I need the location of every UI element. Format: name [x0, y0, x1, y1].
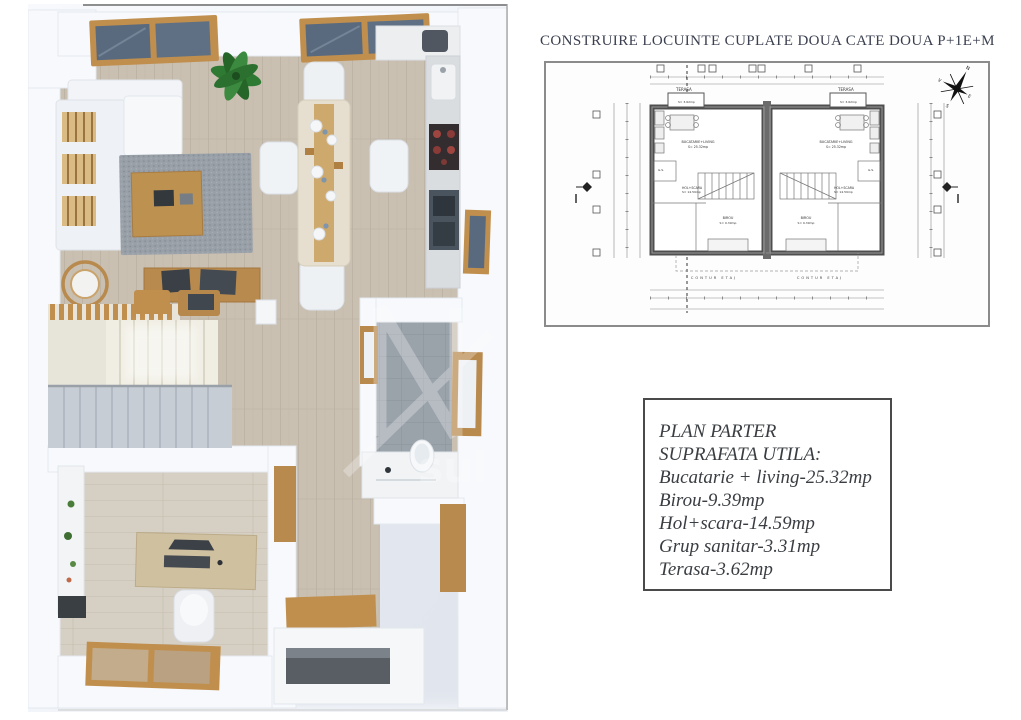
svg-text:BIROU: BIROU: [801, 216, 812, 220]
svg-text:G.S.: G.S.: [658, 168, 664, 172]
desk-chair-1: [134, 290, 170, 314]
window-top-left: [89, 15, 219, 67]
svg-text:S= 9.39mp: S= 9.39mp: [720, 221, 737, 225]
svg-text:S= 9.39mp: S= 9.39mp: [798, 221, 815, 225]
office-tv: [58, 596, 86, 618]
svg-text:BUCATARIE+LIVING: BUCATARIE+LIVING: [819, 140, 852, 144]
blueprint-svg: TERASA TERASA: [546, 63, 988, 325]
stair-lower-flight: [48, 386, 232, 448]
listing-image: sul CONSTRUIRE LOCUINTE CUPLATE DOUA CAT…: [0, 0, 1021, 720]
office-shelf: [58, 466, 84, 614]
sofa-cushions: [62, 112, 96, 226]
staircase: [48, 320, 232, 448]
area-item: Hol+scara-14.59mp: [659, 512, 890, 535]
floor-plan-3d-render: sul: [28, 4, 508, 712]
entrance-mat: [285, 594, 376, 629]
stair-landing: [48, 320, 106, 386]
page-title: CONSTRUIRE LOCUINTE CUPLATE DOUA CATE DO…: [540, 33, 1000, 50]
dining-chair-right: [370, 140, 408, 192]
area-box-heading-2: SUPRAFATA UTILA:: [659, 443, 890, 466]
svg-text:S= 25.32mp: S= 25.32mp: [826, 145, 846, 149]
kitchen-window: [463, 210, 491, 275]
area-item: Terasa-3.62mp: [659, 558, 890, 581]
watermark-text: sul: [418, 443, 487, 492]
svg-text:S= 25.32mp: S= 25.32mp: [688, 145, 708, 149]
office-door: [274, 466, 296, 542]
blueprint-drawing: TERASA TERASA: [544, 61, 990, 327]
contur-etaj-label-left: CONTUR ETAJ: [691, 276, 737, 280]
keyboard: [164, 555, 210, 568]
svg-text:S= 14.59mp: S= 14.59mp: [682, 190, 701, 194]
area-item: Bucatarie + living-25.32mp: [659, 466, 890, 489]
svg-text:S= 14.59mp: S= 14.59mp: [834, 190, 853, 194]
area-item: Grup sanitar-3.31mp: [659, 535, 890, 558]
cube-side-table: [256, 300, 276, 324]
oven: [429, 190, 459, 250]
area-box-heading-1: PLAN PARTER: [659, 420, 890, 443]
office-window: [85, 642, 220, 691]
monitor: [161, 269, 190, 293]
office-desk: [135, 532, 256, 589]
cooktop: [429, 124, 459, 170]
coffee-machine: [422, 30, 448, 52]
office-monitor: [168, 539, 214, 550]
area-summary-box: PLAN PARTER SUPRAFATA UTILA: Bucatarie +…: [643, 398, 892, 591]
terasa-label-right: TERASA: [837, 87, 854, 92]
area-item: Birou-9.39mp: [659, 489, 890, 512]
sink-faucet: [385, 467, 391, 473]
office-chair: [174, 590, 214, 642]
contur-etaj-label-right: CONTUR ETAJ: [797, 276, 843, 280]
terrace-door: [440, 504, 466, 592]
svg-text:G.S.: G.S.: [868, 168, 874, 172]
svg-text:S= 3.62mp: S= 3.62mp: [840, 100, 857, 104]
faucet: [440, 67, 446, 73]
svg-text:BIROU: BIROU: [723, 216, 734, 220]
terasa-label-left: TERASA: [675, 87, 692, 92]
floor-plan-3d-svg: sul: [28, 4, 508, 712]
dining-chair-left: [260, 142, 298, 194]
coffee-table: [131, 171, 203, 237]
svg-text:BUCATARIE+LIVING: BUCATARIE+LIVING: [681, 140, 714, 144]
svg-text:S= 3.62mp: S= 3.62mp: [678, 100, 695, 104]
